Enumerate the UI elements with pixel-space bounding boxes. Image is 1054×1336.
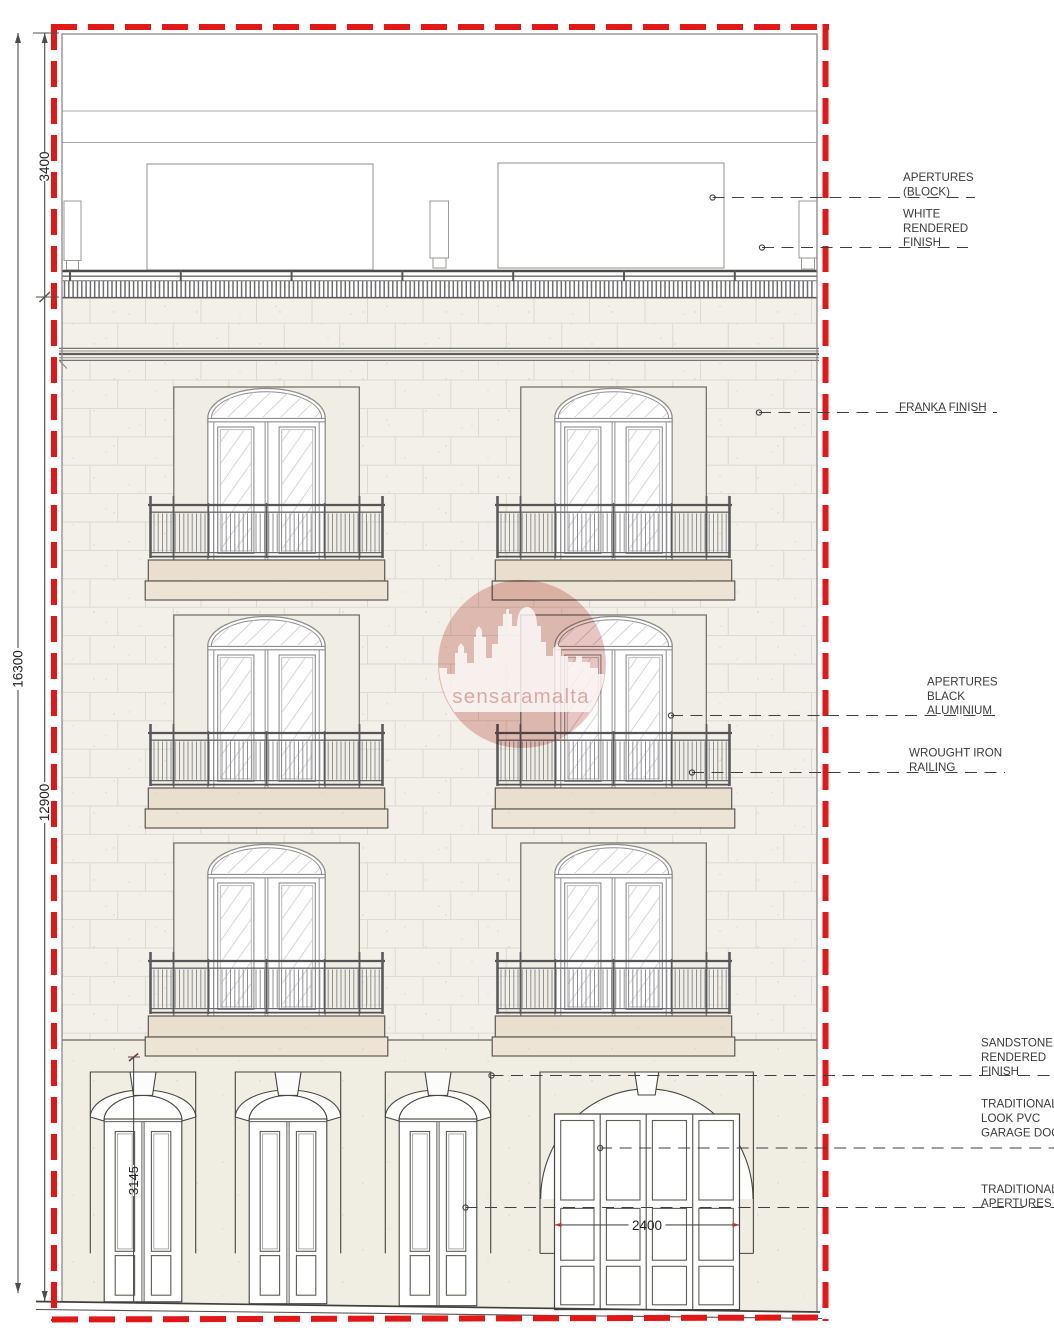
svg-text:FINISH: FINISH [903, 236, 941, 249]
svg-text:APERTURES: APERTURES [927, 676, 998, 689]
svg-text:APERTURES: APERTURES [981, 1197, 1052, 1210]
svg-text:3400: 3400 [37, 151, 52, 181]
svg-text:16300: 16300 [11, 650, 26, 688]
svg-text:SANDSTONE: SANDSTONE [981, 1037, 1053, 1050]
svg-text:(BLOCK): (BLOCK) [903, 186, 950, 199]
svg-text:WHITE: WHITE [903, 208, 941, 221]
svg-text:TRADITIONAL: TRADITIONAL [981, 1183, 1054, 1196]
svg-text:12900: 12900 [37, 784, 52, 822]
svg-text:RENDERED: RENDERED [981, 1051, 1046, 1064]
svg-text:sensaramalta: sensaramalta [452, 685, 589, 708]
svg-text:LOOK PVC: LOOK PVC [981, 1112, 1040, 1125]
svg-text:RENDERED: RENDERED [903, 222, 968, 235]
svg-text:TRADITIONAL: TRADITIONAL [981, 1098, 1054, 1111]
svg-text:3145: 3145 [126, 1166, 141, 1195]
svg-text:RAILING: RAILING [909, 761, 955, 774]
svg-text:FINISH: FINISH [981, 1065, 1019, 1078]
svg-text:2400: 2400 [632, 1218, 662, 1233]
svg-text:APERTURES: APERTURES [903, 171, 974, 184]
svg-text:FRANKA FINISH: FRANKA FINISH [899, 401, 987, 414]
svg-text:BLACK: BLACK [927, 690, 965, 703]
svg-text:ALUMINIUM: ALUMINIUM [927, 704, 992, 717]
svg-text:WROUGHT IRON: WROUGHT IRON [909, 747, 1002, 760]
svg-text:GARAGE DOOR: GARAGE DOOR [981, 1127, 1054, 1140]
